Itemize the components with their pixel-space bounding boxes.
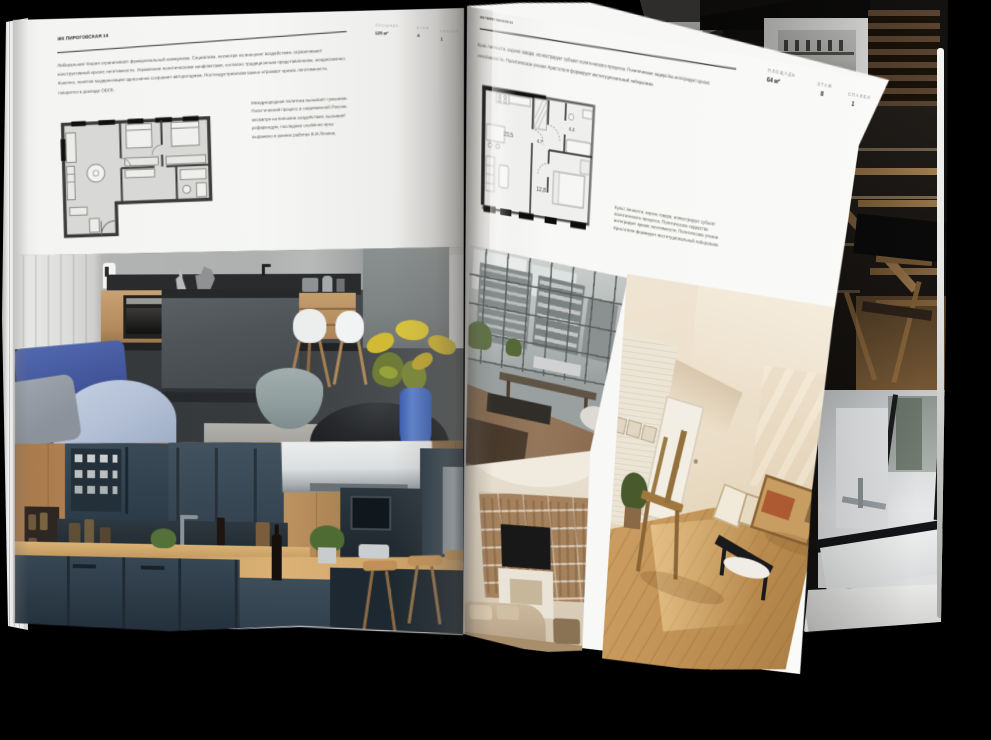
svg-text:4,2: 4,2 <box>569 127 575 134</box>
svg-text:4,7: 4,7 <box>537 139 543 146</box>
